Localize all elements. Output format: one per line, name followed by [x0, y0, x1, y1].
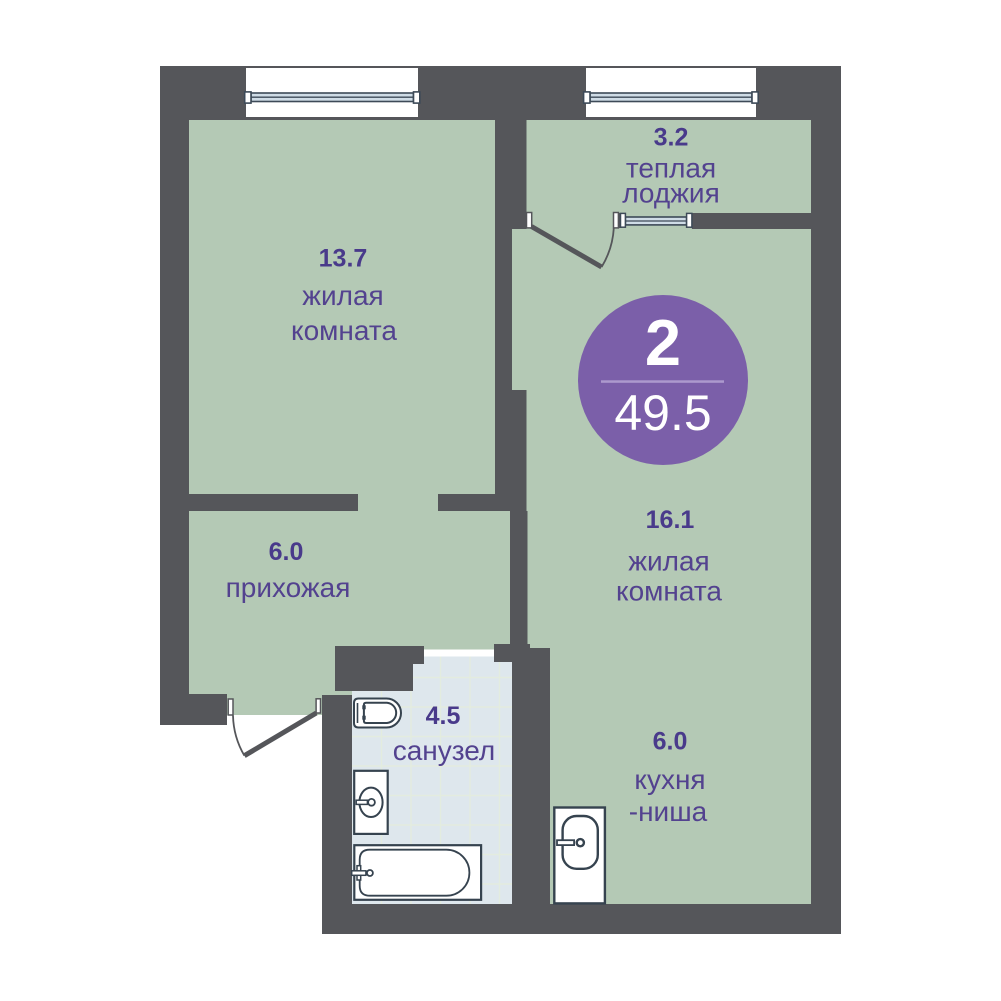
svg-text:жилая: жилая [302, 280, 383, 311]
svg-text:кухня: кухня [634, 764, 705, 795]
svg-text:6.0: 6.0 [653, 728, 688, 756]
svg-text:комната: комната [616, 576, 722, 607]
svg-text:-ниша: -ниша [629, 796, 708, 827]
svg-text:2: 2 [645, 306, 681, 379]
svg-text:прихожая: прихожая [226, 572, 351, 603]
svg-text:комната: комната [291, 315, 397, 346]
svg-text:лоджия: лоджия [622, 178, 719, 209]
svg-text:6.0: 6.0 [269, 538, 304, 566]
svg-text:49.5: 49.5 [614, 385, 711, 441]
svg-text:жилая: жилая [628, 546, 709, 577]
svg-text:13.7: 13.7 [319, 245, 368, 273]
svg-text:4.5: 4.5 [426, 702, 461, 730]
svg-text:16.1: 16.1 [646, 506, 695, 534]
svg-text:санузел: санузел [393, 735, 496, 766]
svg-text:3.2: 3.2 [654, 124, 689, 152]
